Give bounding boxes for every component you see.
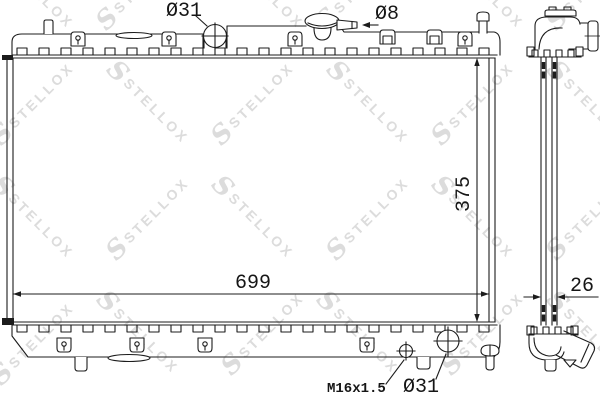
- label-filler-neck-diameter: Ø31: [166, 2, 202, 22]
- mounting-bracket: [198, 338, 212, 352]
- mounting-bracket: [458, 32, 472, 46]
- core-gaskets: [542, 62, 556, 322]
- label-outlet-diameter: Ø31: [403, 378, 439, 398]
- mounting-bracket: [288, 32, 302, 46]
- clip: [380, 30, 395, 44]
- mounting-bracket: [130, 338, 144, 352]
- oval-slot: [108, 355, 150, 362]
- mounting-bracket: [57, 338, 71, 352]
- label-core-height: 375: [455, 173, 475, 215]
- mounting-bracket: [71, 32, 85, 46]
- outlet-port: [434, 327, 462, 379]
- side-top-tank: [535, 17, 600, 51]
- core-tubes: [541, 58, 557, 325]
- bottom-peg: [417, 357, 430, 369]
- overflow-tube: [337, 20, 378, 30]
- radiator-technical-drawing-page: SSTELLOXSSTELLOXSSTELLOXSSTELLOXSSTELLOX…: [0, 0, 600, 400]
- crimp-teeth-top: [17, 48, 489, 55]
- crimp-teeth-bottom: [17, 325, 489, 332]
- front-view: [2, 12, 500, 384]
- leader-line: [386, 360, 404, 384]
- side-cap: [545, 7, 576, 16]
- oval-slot: [116, 33, 152, 39]
- top-right-pipe: [477, 12, 489, 33]
- radiator-drawing: [0, 0, 600, 400]
- clip: [427, 30, 442, 44]
- mounting-bracket: [162, 32, 176, 46]
- label-drain-thread: M16x1.5: [327, 382, 386, 396]
- label-core-width: 699: [228, 274, 278, 294]
- side-crimp-top: [532, 50, 574, 57]
- mounting-bracket: [360, 338, 374, 352]
- label-core-thickness: 26: [570, 277, 594, 297]
- side-crimp-bottom: [531, 327, 573, 334]
- bottom-peg: [75, 357, 87, 371]
- top-peg: [44, 20, 53, 34]
- label-overflow-diameter: Ø8: [375, 5, 399, 25]
- side-bottom-tank: [529, 331, 595, 371]
- arrowhead: [362, 22, 370, 28]
- side-view: [524, 7, 600, 371]
- radiator-cap: [305, 14, 339, 41]
